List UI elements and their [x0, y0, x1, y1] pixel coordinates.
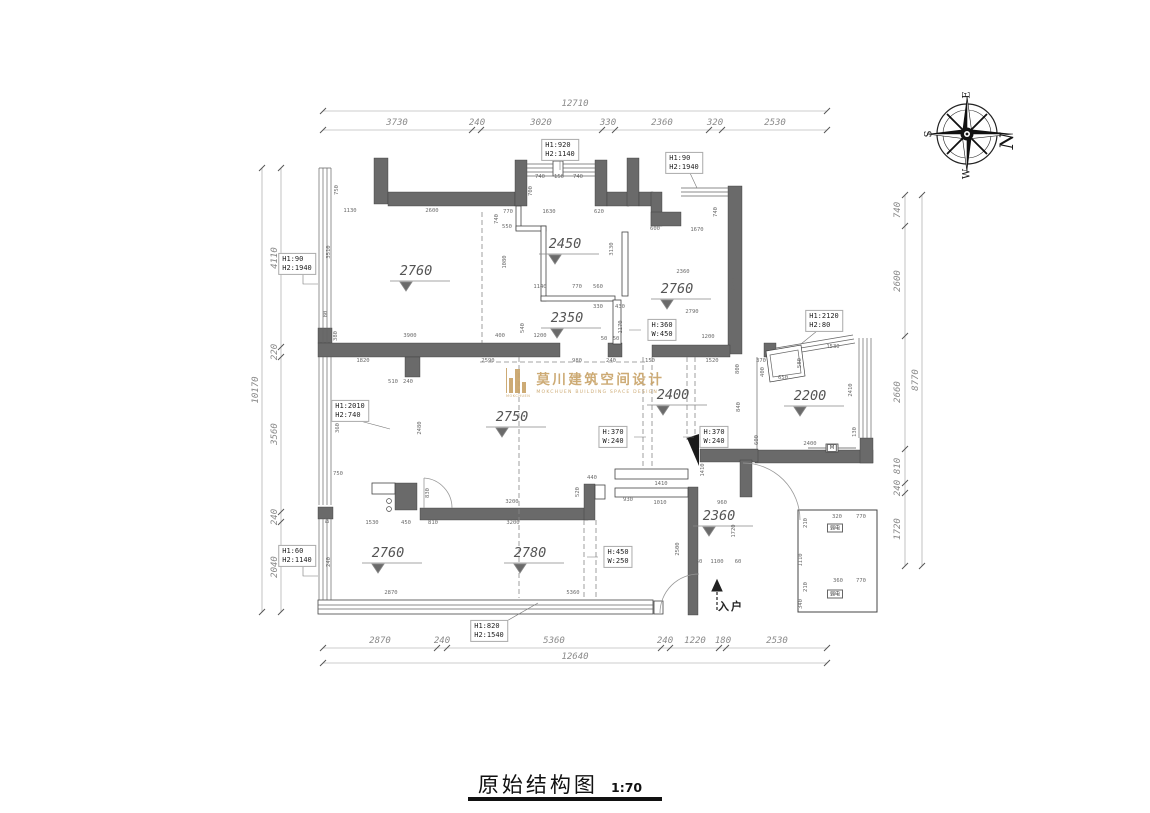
dim-left-seg: 240: [270, 509, 280, 525]
dim-top-seg: 3020: [530, 118, 552, 128]
beam-note: H:360W:450: [647, 319, 676, 341]
inner-dim: 600: [754, 435, 760, 445]
dim-right-total: 8770: [911, 369, 921, 391]
dim-bottom-seg: 1220: [684, 636, 706, 646]
inner-dim: 520: [575, 487, 581, 497]
inner-dim: 810: [428, 520, 438, 526]
room-level-middle: 2350: [551, 310, 584, 326]
room-level-hall: 2400: [657, 387, 690, 403]
room-level-bay: 2200: [794, 388, 827, 404]
drawing-title-text: 原始结构图: [478, 773, 598, 797]
watermark-cn: 莫川建筑空间设计: [536, 368, 664, 388]
inner-dim: 130: [852, 427, 858, 437]
beam-note-line: H2:80: [809, 321, 839, 330]
inner-dim: 80: [323, 311, 329, 318]
dim-top-seg: 3730: [386, 118, 408, 128]
beam-note-line: H1:2120: [809, 312, 839, 321]
inner-dim: 430: [615, 304, 625, 310]
beam-note-line: H:360: [651, 321, 672, 330]
inner-dim: 2790: [685, 309, 698, 315]
inner-dim: 50: [601, 336, 608, 342]
dim-top-seg: 2530: [764, 118, 786, 128]
inner-dim: 700: [528, 186, 534, 196]
inner-dim: 450: [401, 520, 411, 526]
room-level-bottommid: 2780: [514, 545, 547, 561]
inner-dim: 440: [587, 475, 597, 481]
beam-note: H1:920H2:1140: [541, 139, 579, 161]
entrance-label: 入户: [718, 598, 744, 614]
dim-bottom-seg: 2530: [766, 636, 788, 646]
inner-dim: 340: [798, 599, 804, 609]
dim-top-seg: 2360: [651, 118, 673, 128]
inner-dim: 1100: [710, 559, 723, 565]
inner-dim: 2360: [676, 269, 689, 275]
beam-note: H:370W:240: [598, 426, 627, 448]
beam-note: H:370W:240: [699, 426, 728, 448]
compass-label-n: N: [996, 133, 1018, 150]
inner-dim: 3200: [505, 499, 518, 505]
watermark-en: MOKCHUEN BUILDING SPACE DESIGN: [536, 390, 664, 395]
inner-dim: 1080: [502, 255, 508, 268]
watermark-caption: MOKCHUEN: [506, 394, 530, 398]
room-level-living: 2750: [496, 409, 529, 425]
watermark-text: 莫川建筑空间设计 MOKCHUEN BUILDING SPACE DESIGN: [536, 368, 664, 395]
dim-left-seg: 220: [270, 344, 280, 360]
beam-note-line: H:370: [602, 428, 623, 437]
inner-dim: 600: [650, 226, 660, 232]
inner-dim: 60: [696, 559, 703, 565]
drawing-scale: 1:70: [611, 780, 642, 795]
inner-dim: 560: [593, 284, 603, 290]
weak-current-box: 弱电: [827, 590, 843, 599]
compass-label-s: S: [924, 131, 935, 138]
beam-note: H1:60H2:1140: [278, 545, 316, 567]
inner-dim: 2590: [481, 358, 494, 364]
inner-dim: 1140: [533, 284, 546, 290]
dim-top-seg: 330: [600, 118, 616, 128]
dim-top-total: 12710: [561, 99, 588, 109]
dim-right-seg: 740: [893, 202, 903, 218]
dim-top-seg: 240: [469, 118, 485, 128]
inner-dim: 620: [594, 209, 604, 215]
dim-top-seg: 320: [707, 118, 723, 128]
inner-dim: 1630: [542, 209, 555, 215]
beam-note-line: H2:740: [335, 411, 365, 420]
beam-note-line: W:240: [703, 437, 724, 446]
inner-dim: 510: [388, 379, 398, 385]
inner-dim: 400: [760, 367, 766, 377]
beam-note: H1:820H2:1540: [470, 620, 508, 642]
door-mark-m: M: [827, 444, 837, 452]
inner-dim: 740: [713, 207, 719, 217]
drawing-sheet: 12710 3730 240 3020 330 2360 320 2530 28…: [0, 0, 1150, 813]
inner-dim: 2400: [803, 441, 816, 447]
inner-dim: 980: [572, 358, 582, 364]
dim-left-seg: 3560: [270, 423, 280, 445]
beam-note-line: H:450: [607, 548, 628, 557]
inner-dim: 2870: [384, 590, 397, 596]
beam-note: H1:2010H2:740: [331, 400, 369, 422]
inner-dim: 2410: [848, 383, 854, 396]
inner-dim: 740: [573, 174, 583, 180]
inner-dim: 1170: [618, 320, 624, 333]
beam-note-line: H1:820: [474, 622, 504, 631]
room-level-entry: 2360: [703, 508, 736, 524]
dim-bottom-seg: 240: [434, 636, 450, 646]
inner-dim: 750: [333, 471, 343, 477]
beam-note-line: H2:1540: [474, 631, 504, 640]
beam-note-line: H1:90: [669, 154, 699, 163]
dim-bottom-seg: 180: [715, 636, 731, 646]
dim-right-seg: 810: [893, 458, 903, 474]
inner-dim: 380: [333, 331, 339, 341]
beam-note: H1:90H2:1940: [665, 152, 703, 174]
beam-note-line: W:450: [651, 330, 672, 339]
inner-dim: 50: [613, 336, 620, 342]
inner-dim: 960: [717, 500, 727, 506]
inner-dim: 2480: [417, 421, 423, 434]
inner-dim: 320: [832, 514, 842, 520]
inner-dim: 1670: [690, 227, 703, 233]
inner-dim: 210: [803, 518, 809, 528]
inner-dim: 240: [606, 358, 616, 364]
dim-bottom-seg: 5360: [543, 636, 565, 646]
beam-note-line: W:250: [607, 557, 628, 566]
inner-dim: 360: [833, 578, 843, 584]
beam-note: H:450W:250: [603, 546, 632, 568]
inner-dim: 1820: [356, 358, 369, 364]
beam-note: H1:2120H2:80: [805, 310, 843, 332]
inner-dim: 400: [495, 333, 505, 339]
inner-dim: 150: [554, 174, 564, 180]
dim-bottom-seg: 2870: [369, 636, 391, 646]
inner-dim: 1200: [701, 334, 714, 340]
inner-dim: 770: [856, 514, 866, 520]
inner-dim: 60: [735, 559, 742, 565]
inner-dim: 930: [623, 497, 633, 503]
beam-note-line: H1:60: [282, 547, 312, 556]
dim-left-total: 10170: [251, 376, 261, 403]
dim-right-seg: 2600: [893, 270, 903, 292]
room-level-topright: 2760: [661, 281, 694, 297]
inner-dim: 3900: [403, 333, 416, 339]
inner-dim: 830: [425, 488, 431, 498]
door-leaf-triangle: [687, 434, 699, 466]
inner-dim: 2500: [675, 542, 681, 555]
beam-note-line: H2:1940: [669, 163, 699, 172]
dim-bottom-total: 12640: [561, 652, 588, 662]
inner-dim: 210: [803, 582, 809, 592]
inner-dim: 770: [856, 578, 866, 584]
inner-dim: 1530: [826, 344, 839, 350]
inner-dim: 330: [593, 304, 603, 310]
inner-dim: 740: [494, 214, 500, 224]
inner-dim: 550: [502, 224, 512, 230]
inner-dim: 1110: [798, 553, 804, 566]
inner-dim: 800: [735, 364, 741, 374]
inner-dim: 1530: [365, 520, 378, 526]
room-level-midtop: 2450: [549, 236, 582, 252]
inner-dim: 1410: [654, 481, 667, 487]
inner-dim: 650: [778, 375, 788, 381]
beam-note-line: H1:920: [545, 141, 575, 150]
inner-dim: 540: [520, 323, 526, 333]
inner-dim: 750: [334, 185, 340, 195]
inner-dim: 1520: [705, 358, 718, 364]
title-underline: [468, 797, 662, 801]
inner-dim: 1130: [343, 208, 356, 214]
room-level-bottomleft: 2760: [372, 545, 405, 561]
inner-dim: 770: [572, 284, 582, 290]
beam-note: H1:90H2:1940: [278, 253, 316, 275]
inner-dim: 150: [645, 358, 655, 364]
beam-note-line: H2:1140: [282, 556, 312, 565]
inner-dim: 1200: [533, 333, 546, 339]
beam-note-line: H:370: [703, 428, 724, 437]
inner-dim: 1720: [731, 524, 737, 537]
beam-note-line: H1:90: [282, 255, 312, 264]
inner-dim: 580: [797, 358, 803, 368]
dim-right-seg: 2660: [893, 381, 903, 403]
inner-dim: 240: [403, 379, 413, 385]
beam-note-line: H2:1140: [545, 150, 575, 159]
dim-right-seg: 240: [893, 480, 903, 496]
watermark-logo-icon: MOKCHUEN: [506, 368, 530, 398]
inner-dim: 2780: [731, 277, 737, 290]
inner-dim: 1410: [700, 463, 706, 476]
weak-current-box: 弱电: [827, 524, 843, 533]
beam-note-line: H2:1940: [282, 264, 312, 273]
inner-dim: 840: [736, 402, 742, 412]
compass-label-w: W: [962, 169, 973, 179]
dim-right-seg: 1720: [893, 518, 903, 540]
floorplan-svg: [0, 0, 1150, 813]
drawing-title: 原始结构图 1:70: [478, 769, 642, 799]
inner-dim: 770: [503, 209, 513, 215]
inner-dim: 740: [535, 174, 545, 180]
inner-dim: 1010: [653, 500, 666, 506]
inner-dim: 360: [335, 423, 341, 433]
watermark: MOKCHUEN 莫川建筑空间设计 MOKCHUEN BUILDING SPAC…: [506, 368, 664, 398]
inner-dim: 3130: [609, 242, 615, 255]
inner-dim: 240: [326, 557, 332, 567]
inner-dim: 2600: [425, 208, 438, 214]
beam-note-line: W:240: [602, 437, 623, 446]
inner-dim: 3510: [326, 245, 332, 258]
dim-bottom-seg: 240: [657, 636, 673, 646]
inner-dim: 3200: [506, 520, 519, 526]
inner-dim: 80: [325, 517, 331, 524]
room-level-topleft: 2760: [400, 263, 433, 279]
beam-note-line: H1:2010: [335, 402, 365, 411]
inner-dim: 5360: [566, 590, 579, 596]
inner-dim: 370: [756, 358, 766, 364]
compass-label-e: E: [962, 91, 973, 98]
